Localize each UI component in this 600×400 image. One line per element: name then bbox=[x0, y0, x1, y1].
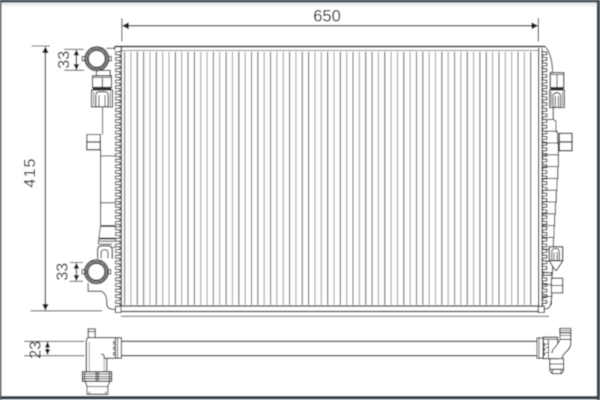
svg-text:650: 650 bbox=[313, 8, 341, 26]
svg-text:23: 23 bbox=[27, 341, 44, 359]
svg-text:33: 33 bbox=[55, 263, 72, 281]
svg-text:415: 415 bbox=[22, 157, 39, 187]
svg-text:33: 33 bbox=[56, 51, 73, 69]
